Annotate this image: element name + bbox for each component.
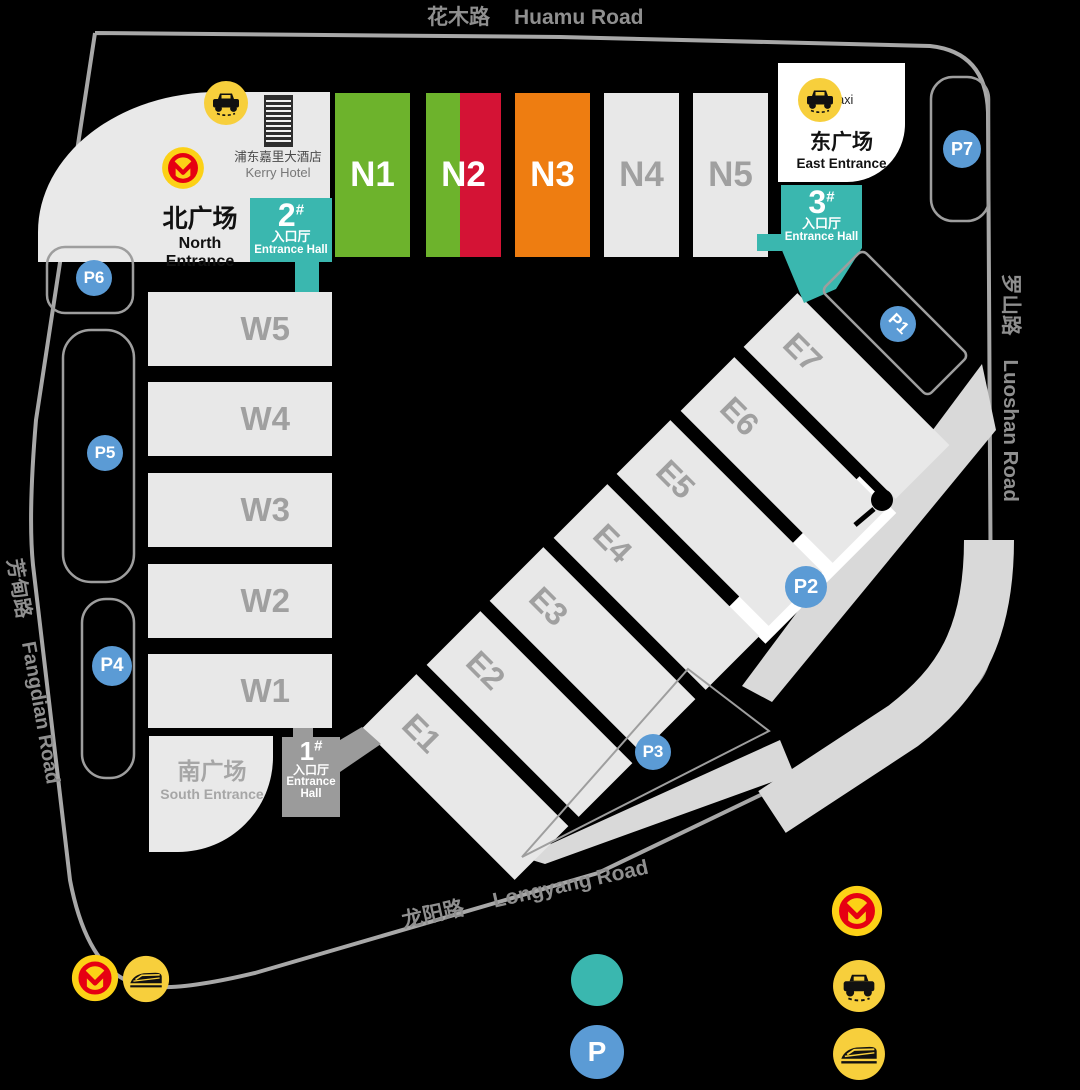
legend-entrance-hall-dot [571, 954, 623, 1006]
taxi-label: Taxi [831, 93, 853, 107]
road-label-longyang: 龙阳路Longyang Road [399, 845, 679, 935]
north-entrance-label: 北广场 North Entrance [130, 199, 270, 271]
parking-marker-p1: P1 [880, 306, 916, 342]
hotel-label: 浦东嘉里大酒店 Kerry Hotel [222, 146, 334, 180]
hall-n5: N5 [693, 93, 768, 257]
metro-icon [832, 886, 882, 936]
train-icon [123, 956, 169, 1002]
metro-icon [72, 955, 118, 1001]
hall-n4: N4 [604, 93, 679, 257]
parking-marker-p4: P4 [92, 646, 132, 686]
parking-marker-p6: P6 [76, 260, 112, 296]
parking-marker-p7: P7 [943, 130, 981, 168]
entrance-hall-1: 1# 入口厅 Entrance Hall [282, 737, 340, 817]
parking-marker-p5: P5 [87, 435, 123, 471]
entrance-hall-3-connector [781, 248, 862, 303]
road-label-huamu: 花木路Huamu Road [427, 1, 644, 31]
east-entrance-label: 东广场 East Entrance [778, 126, 905, 171]
hall-w1: W1 [148, 654, 332, 728]
road-label-fangdian: 芳甸路Fangdian Road [1, 556, 76, 827]
hall-n2: N2 [426, 93, 501, 257]
taxi-icon [833, 960, 885, 1012]
hall-w5: W5 [148, 292, 332, 366]
parking-marker-p3: P3 [635, 734, 671, 770]
south-entrance-label: 南广场 South Entrance [152, 752, 272, 802]
hall-w2: W2 [148, 564, 332, 638]
entrance-hall-2-stem [295, 262, 319, 292]
entrance-hall-3: 3# 入口厅 Entrance Hall [781, 185, 862, 248]
parking-marker-p2: P2 [785, 566, 827, 608]
road-label-luoshan: 罗山路Luoshan Road [998, 274, 1028, 524]
hall-n3: N3 [515, 93, 590, 257]
train-icon [833, 1028, 885, 1080]
hall-n1: N1 [335, 93, 410, 257]
hall-w3: W3 [148, 473, 332, 547]
entrance-hall-1-stem [293, 728, 313, 738]
hotel-building-icon [264, 95, 293, 147]
hall-w4: W4 [148, 382, 332, 456]
legend-parking-symbol: P [570, 1025, 624, 1079]
parking-outline-p4 [82, 599, 134, 778]
expo-center-map: N1 N2 N3 N4 N5 W5 W4 W3 W2 W1 E1 E2 E3 E… [0, 0, 1080, 1090]
